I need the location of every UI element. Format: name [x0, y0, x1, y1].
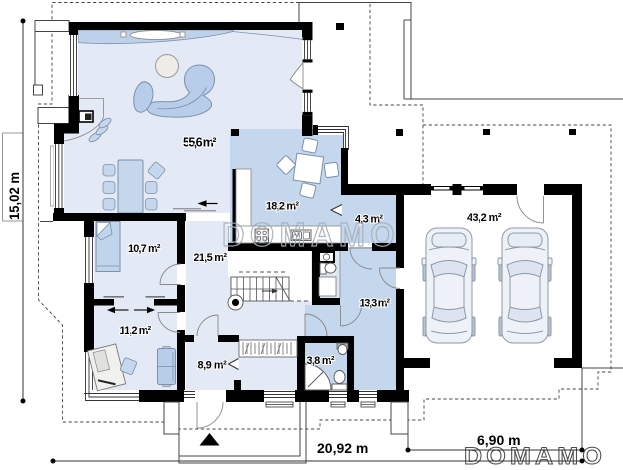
svg-text:6,90 m: 6,90 m [477, 432, 521, 448]
svg-text:DOMAMO: DOMAMO [222, 217, 400, 254]
svg-text:43,2 m²: 43,2 m² [467, 212, 502, 224]
svg-text:18,2 m²: 18,2 m² [266, 201, 299, 213]
svg-text:11,2 m²: 11,2 m² [120, 325, 152, 337]
svg-text:55,6 m²: 55,6 m² [183, 136, 217, 150]
svg-text:13,3 m²: 13,3 m² [360, 298, 391, 310]
svg-text:10,7 m²: 10,7 m² [128, 243, 161, 255]
svg-text:3,8 m²: 3,8 m² [307, 355, 335, 367]
svg-text:15,02 m: 15,02 m [6, 172, 22, 220]
svg-text:8,9 m²: 8,9 m² [198, 360, 228, 372]
svg-text:20,92 m: 20,92 m [317, 440, 368, 456]
